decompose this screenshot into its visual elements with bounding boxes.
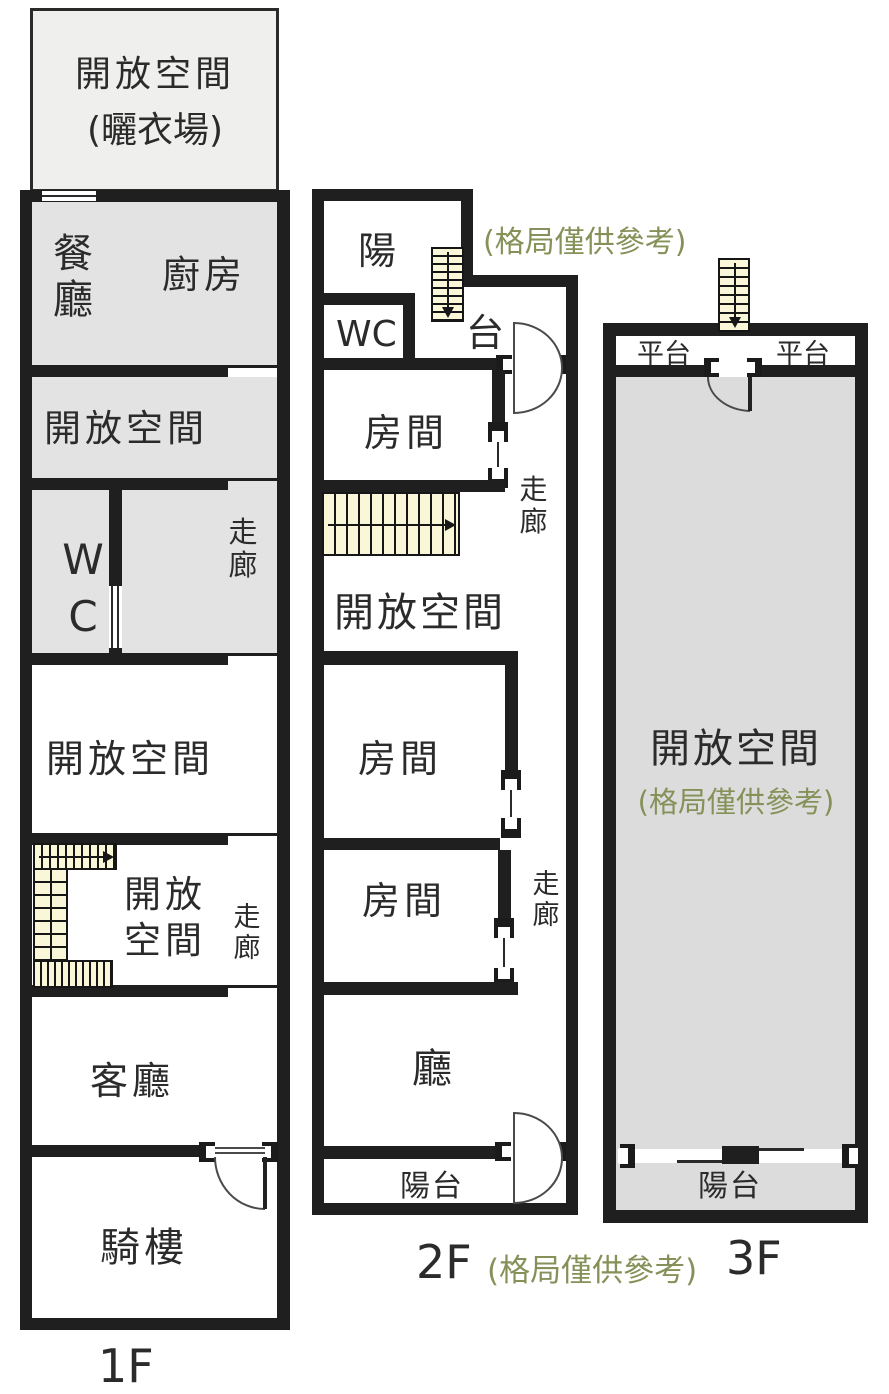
f1-rooftop-label-line2: (曬衣場): [40, 108, 270, 153]
f2-wall-entry: [312, 358, 498, 370]
f2-room2-label: 房間: [358, 736, 442, 784]
f2-room2-door-jamb-top: [501, 770, 521, 790]
f1-kitchen-label: 廚房: [162, 252, 246, 300]
f3-sliding-panel-line-upper: [758, 1148, 804, 1151]
f2-wall-room1-right: [492, 370, 505, 422]
f3-wall-right: [855, 323, 868, 1223]
f2-room3-label: 房間: [362, 878, 446, 926]
f2-wall-wc-top: [324, 293, 415, 305]
f1-rooftop-room: [30, 8, 279, 192]
f3-sliding-bracket-left: [620, 1144, 635, 1168]
f1-opening-3: [228, 656, 277, 665]
f2-stair-horizontal: [322, 492, 460, 556]
f1-wall-bottom: [20, 1318, 290, 1330]
f1-stair-bottom-run: [33, 960, 113, 988]
f1-wc-label: WC: [60, 532, 106, 645]
f1-corridor-b-label: 走廊: [232, 903, 262, 965]
f2-room2-door-line: [510, 790, 512, 818]
f1-dining-label: 餐廳: [50, 232, 96, 323]
f2-wall-upper-right: [461, 275, 578, 287]
f1-corridor-a-label: 走廊: [227, 516, 259, 582]
f1-open-c-label: 開放空間: [124, 872, 220, 965]
f2-wall-room1-bottom: [324, 480, 505, 492]
f1-open-a-label: 開放空間: [44, 406, 208, 452]
f1-opening-3-line: [228, 653, 277, 656]
f2-wall-room3-right: [498, 850, 511, 920]
f2-note-bottom: (格局僅供參考): [487, 1252, 697, 1291]
f2-entry-door-icon: [505, 318, 567, 418]
f1-stair-left-run: [33, 868, 68, 962]
f1-arcade-label: 騎樓: [100, 1223, 188, 1273]
f2-balcony-b-label: 台: [466, 310, 504, 358]
f2-wall-room3-bottom: [322, 982, 518, 995]
f2-room1-door-line: [497, 442, 499, 468]
f3-floor-label: 3F: [726, 1230, 782, 1288]
f1-opening-4-line: [228, 833, 277, 836]
f3-sliding-bracket-right: [842, 1144, 857, 1168]
f2-note-top: (格局僅供參考): [483, 224, 686, 262]
f2-room3-door-jamb-top: [494, 918, 514, 938]
f2-open-label: 開放空間: [334, 588, 506, 638]
f2-wall-top: [312, 189, 473, 201]
f1-living-label: 客廳: [90, 1058, 174, 1106]
floor-plan-canvas: 開放空間 (曬衣場): [0, 0, 889, 1394]
f3-stair-vertical: [718, 258, 750, 332]
f3-platform-right-label: 平台: [776, 338, 830, 372]
f3-balcony-label: 陽台: [698, 1168, 762, 1206]
f1-wall-left: [20, 190, 32, 1330]
f1-wall-living-bottom: [32, 1145, 200, 1157]
f2-wall-room2-bottom: [322, 838, 500, 850]
f1-opening-2-line: [228, 478, 277, 481]
f2-wall-room2-right: [505, 665, 518, 770]
f2-wall-hall-bottom: [324, 1146, 497, 1159]
f2-room2-door-jamb-bottom: [501, 818, 521, 838]
f2-wall-open-bottom: [318, 651, 518, 665]
f1-wall-kitchen-bottom: [32, 365, 228, 377]
f1-opening-1-line: [228, 365, 277, 368]
f2-balcony-bottom-label: 陽台: [400, 1168, 464, 1206]
f2-corridor-a-label: 走廊: [518, 474, 549, 538]
f2-balcony-a-label: 陽: [358, 228, 396, 276]
f1-window-mullion: [42, 195, 96, 197]
f3-note-label: (格局僅供參考): [618, 784, 854, 820]
f2-room3-door-line: [503, 938, 505, 968]
f2-balcony-door-icon: [505, 1108, 567, 1208]
f1-opening-1: [228, 368, 277, 377]
f1-entrance-door-icon: [212, 1140, 274, 1214]
f3-sliding-panel-center: [722, 1146, 759, 1164]
f2-wall-right: [566, 275, 578, 1215]
f2-wall-left: [312, 189, 324, 1215]
f1-opening-4: [228, 836, 277, 845]
f2-hall-label: 廳: [412, 1044, 452, 1094]
f3-wall-bottom: [603, 1210, 868, 1223]
f2-room1-label: 房間: [364, 410, 448, 458]
f2-room1-door-jamb-top: [488, 422, 508, 442]
f1-wall-open-a-bottom: [32, 478, 228, 490]
f1-wc-pocket-door-line1: [111, 586, 113, 648]
f3-open-label: 開放空間: [618, 724, 854, 774]
f3-wall-left: [603, 323, 616, 1223]
f1-stair-top-run: [33, 843, 117, 870]
f1-wall-right: [277, 190, 290, 1330]
f1-wall-wc-bottom: [32, 653, 228, 665]
f1-open-b-label: 開放空間: [46, 736, 214, 784]
f2-floor-label: 2F: [416, 1234, 472, 1292]
f3-door-icon: [702, 375, 756, 419]
f1-opening-5: [228, 988, 277, 997]
f1-floor-label: 1F: [98, 1338, 154, 1394]
f1-opening-5-line: [228, 985, 277, 988]
f2-corridor-b-label: 走廊: [531, 870, 561, 932]
f2-stair-vertical: [431, 247, 464, 322]
f1-wc-pocket-door-line2: [117, 586, 119, 648]
f2-wc-label: WC: [336, 312, 397, 357]
f1-rooftop-label-line1: 開放空間: [40, 52, 270, 97]
f3-platform-left-label: 平台: [637, 338, 691, 372]
f1-opening-2: [228, 481, 277, 490]
